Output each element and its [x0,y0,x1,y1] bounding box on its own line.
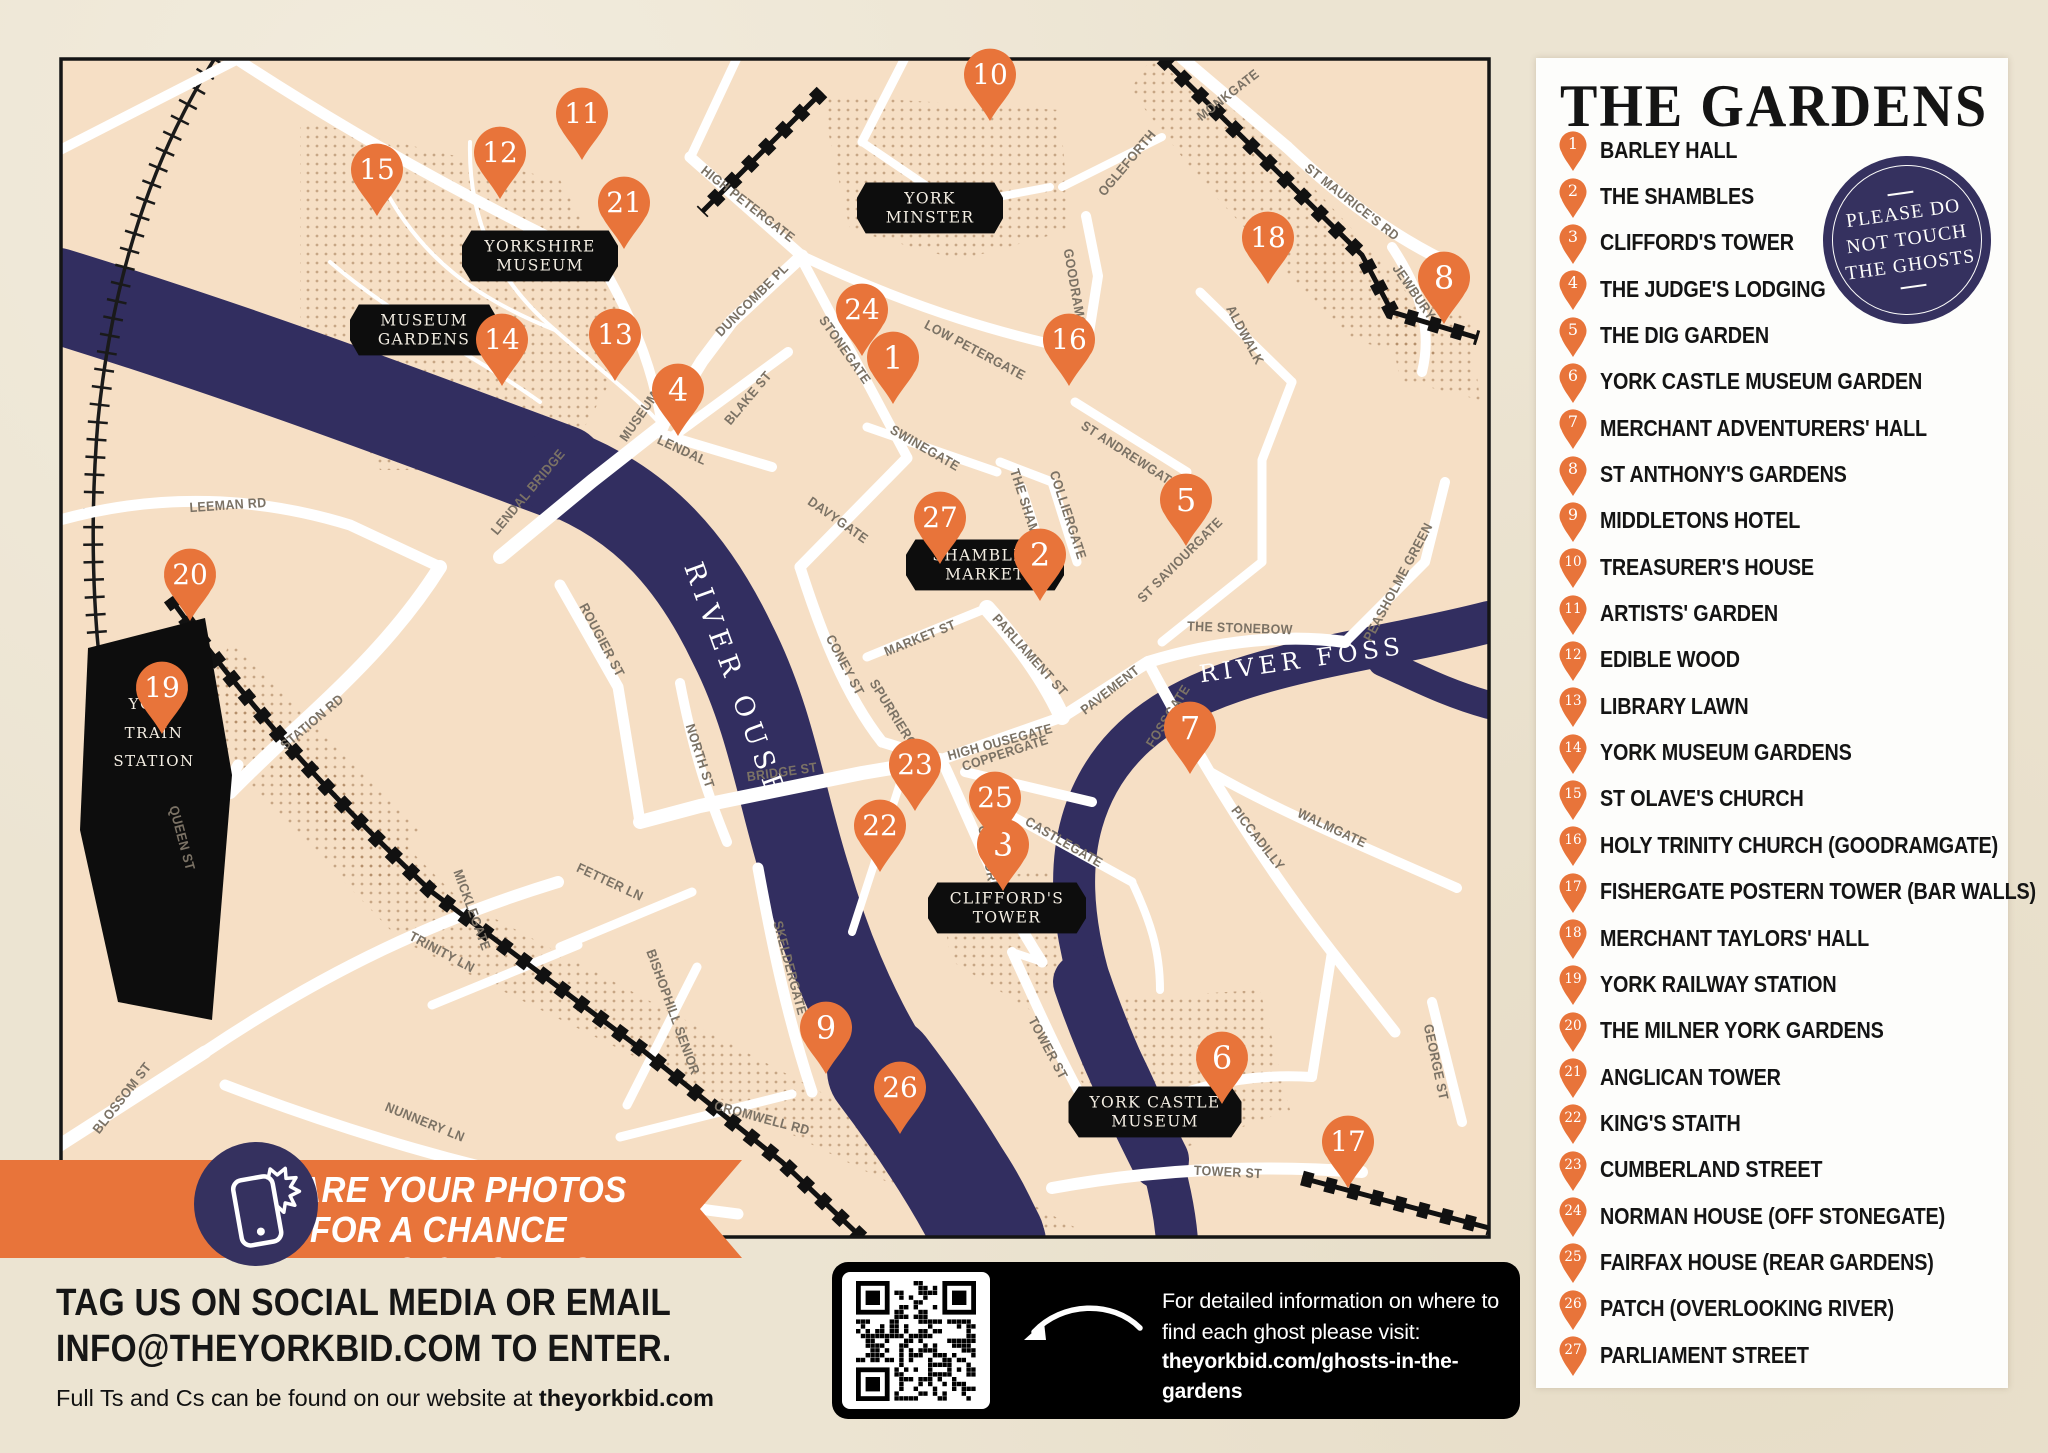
legend-item-label: THE SHAMBLES [1600,183,1754,210]
map-pin-14: 14 [476,314,528,386]
map-pin-icon: 3 [1558,221,1588,265]
legend-item-16: 16HOLY TRINITY CHURCH (GOODRAMGATE) [1536,822,2008,868]
svg-text:12: 12 [482,136,518,169]
svg-text:22: 22 [1564,1110,1581,1126]
map-pin-icon: 10 [1558,545,1588,589]
legend-item-label: EDIBLE WOOD [1600,646,1740,673]
legend-item-label: FAIRFAX HOUSE (REAR GARDENS) [1600,1249,1934,1276]
website-url: theyorkbid.com [539,1385,714,1411]
map-pin-2: 2 [1014,529,1066,601]
map-pin-icon: 16 [1558,823,1588,867]
legend-item-label: THE DIG GARDEN [1600,322,1769,349]
svg-text:5: 5 [1176,481,1196,519]
legend-item-9: 9MIDDLETONS HOTEL [1536,498,2008,544]
legend-item-label: HOLY TRINITY CHURCH (GOODRAMGATE) [1600,832,1998,859]
map-pin-icon: 9 [1558,499,1588,543]
map-pin-11: 11 [556,88,608,160]
svg-text:25: 25 [977,781,1013,814]
qr-url: theyorkbid.com/ghosts-in-the-gardens [1162,1347,1510,1407]
svg-text:8: 8 [1434,259,1454,297]
map-pin-icon: 17 [1558,870,1588,914]
map-pin-icon: 4 [1558,267,1588,311]
map-pin-12: 12 [474,127,526,199]
map-pin-15: 15 [351,144,403,216]
svg-text:18: 18 [1250,221,1286,254]
svg-text:26: 26 [1564,1296,1581,1312]
map-pin-icon: 13 [1558,684,1588,728]
map-pin-18: 18 [1242,212,1294,284]
curved-arrow-icon [1000,1292,1150,1362]
footer-text: TAG US ON SOCIAL MEDIA OR EMAIL INFO@THE… [56,1280,756,1412]
svg-text:2: 2 [1568,181,1578,200]
svg-text:3: 3 [1568,227,1578,246]
legend-item-10: 10TREASURER'S HOUSE [1536,544,2008,590]
svg-text:23: 23 [1564,1157,1581,1173]
legend-item-13: 13LIBRARY LAWN [1536,683,2008,729]
map-pin-icon: 14 [1558,731,1588,775]
map-pin-8: 8 [1418,252,1470,324]
map-pin-icon: 5 [1558,314,1588,358]
svg-text:16: 16 [1051,323,1087,356]
map-pin-7: 7 [1164,702,1216,774]
legend-item-8: 8ST ANTHONY'S GARDENS [1536,451,2008,497]
legend-item-label: MERCHANT ADVENTURERS' HALL [1600,415,1927,442]
svg-text:10: 10 [1564,554,1581,570]
legend-item-label: THE JUDGE'S LODGING [1600,276,1826,303]
legend-item-label: CLIFFORD'S TOWER [1600,229,1794,256]
legend-item-14: 14YORK MUSEUM GARDENS [1536,729,2008,775]
svg-text:22: 22 [862,809,898,842]
svg-text:14: 14 [1564,740,1581,756]
badge-dash-top [1887,191,1913,197]
legend-item-label: KING'S STAITH [1600,1110,1741,1137]
legend-item-24: 24NORMAN HOUSE (OFF STONEGATE) [1536,1193,2008,1239]
legend-item-label: PATCH (OVERLOOKING RIVER) [1600,1295,1894,1322]
map-pin-icon: 27 [1558,1333,1588,1377]
svg-text:13: 13 [1564,693,1581,709]
svg-text:27: 27 [1564,1342,1581,1358]
legend-item-7: 7MERCHANT ADVENTURERS' HALL [1536,405,2008,451]
legend-item-label: FISHERGATE POSTERN TOWER (BAR WALLS) [1600,878,2036,905]
qr-info-box: For detailed information on where to fin… [832,1262,1520,1419]
map-pin-icon: 1 [1558,128,1588,172]
svg-text:24: 24 [844,293,880,326]
svg-text:17: 17 [1564,879,1581,895]
legend-item-11: 11ARTISTS' GARDEN [1536,590,2008,636]
svg-text:13: 13 [597,318,633,351]
svg-text:9: 9 [816,1009,836,1047]
svg-text:10: 10 [972,58,1008,91]
map-pin-9: 9 [800,1002,852,1074]
svg-text:12: 12 [1564,647,1581,663]
svg-text:11: 11 [564,97,600,130]
qr-line-2: find each ghost please visit: [1162,1317,1510,1348]
svg-text:27: 27 [922,501,958,534]
legend-item-6: 6YORK CASTLE MUSEUM GARDEN [1536,359,2008,405]
qr-code-icon [856,1281,976,1401]
legend-item-25: 25FAIRFAX HOUSE (REAR GARDENS) [1536,1239,2008,1285]
photo-contest-banner: SHARE YOUR PHOTOS FOR A CHANCE TO WIN A … [0,1160,742,1258]
map-pin-6: 6 [1196,1032,1248,1104]
svg-text:1: 1 [883,339,903,377]
map-pin-icon: 22 [1558,1101,1588,1145]
selfie-phone-icon [194,1142,318,1266]
legend-sidebar: THE GARDENS PLEASE DO NOT TOUCH THE GHOS… [1536,58,2008,1388]
svg-text:1: 1 [1568,134,1578,153]
legend-item-15: 15ST OLAVE'S CHURCH [1536,776,2008,822]
svg-text:17: 17 [1330,1125,1366,1158]
map-pin-22: 22 [854,800,906,872]
legend-item-20: 20THE MILNER YORK GARDENS [1536,1008,2008,1054]
legend-item-17: 17FISHERGATE POSTERN TOWER (BAR WALLS) [1536,869,2008,915]
legend-item-label: MERCHANT TAYLORS' HALL [1600,925,1869,952]
svg-text:5: 5 [1568,320,1578,339]
map-pin-23: 23 [889,739,941,811]
map-pin-19: 19 [136,662,188,734]
svg-text:8: 8 [1568,459,1578,478]
map-pin-26: 26 [874,1062,926,1134]
svg-text:15: 15 [359,153,395,186]
map-pin-icon: 11 [1558,592,1588,636]
legend-item-23: 23CUMBERLAND STREET [1536,1147,2008,1193]
legend-item-label: YORK RAILWAY STATION [1600,971,1837,998]
map-pin-icon: 25 [1558,1240,1588,1284]
legend-item-label: YORK MUSEUM GARDENS [1600,739,1852,766]
map-pin-icon: 24 [1558,1194,1588,1238]
legend-item-label: NORMAN HOUSE (OFF STONEGATE) [1600,1203,1945,1230]
qr-line-1: For detailed information on where to [1162,1286,1510,1317]
map-pin-27: 27 [914,492,966,564]
svg-text:18: 18 [1564,925,1581,941]
map-pin-icon: 20 [1558,1009,1588,1053]
svg-text:4: 4 [668,371,688,409]
legend-item-27: 27PARLIAMENT STREET [1536,1332,2008,1378]
svg-text:15: 15 [1564,786,1581,802]
svg-text:2: 2 [1030,536,1050,574]
legend-item-19: 19YORK RAILWAY STATION [1536,961,2008,1007]
legend-item-label: ST OLAVE'S CHURCH [1600,785,1804,812]
svg-text:24: 24 [1564,1203,1581,1219]
legend-item-26: 26PATCH (OVERLOOKING RIVER) [1536,1286,2008,1332]
svg-text:26: 26 [882,1071,918,1104]
map-pin-icon: 6 [1558,360,1588,404]
legend-item-label: LIBRARY LAWN [1600,693,1748,720]
map-pin-icon: 21 [1558,1055,1588,1099]
legend-item-label: ST ANTHONY'S GARDENS [1600,461,1847,488]
terms-text: Full Ts and Cs can be found on our websi… [56,1385,756,1412]
svg-text:11: 11 [1564,601,1581,617]
svg-text:25: 25 [1564,1249,1581,1265]
svg-text:6: 6 [1212,1039,1232,1077]
svg-text:20: 20 [1564,1018,1581,1034]
legend-item-12: 12EDIBLE WOOD [1536,637,2008,683]
svg-text:9: 9 [1568,505,1578,524]
svg-text:14: 14 [484,323,520,356]
svg-text:4: 4 [1568,273,1578,292]
map-pin-icon: 8 [1558,453,1588,497]
svg-text:6: 6 [1568,366,1578,385]
map-pin-icon: 15 [1558,777,1588,821]
svg-text:7: 7 [1568,412,1578,431]
legend-item-label: CUMBERLAND STREET [1600,1156,1822,1183]
legend-item-label: THE MILNER YORK GARDENS [1600,1017,1884,1044]
footer-line-2: INFO@THEYORKBID.COM TO ENTER. [56,1326,672,1372]
svg-text:21: 21 [1564,1064,1581,1080]
svg-text:21: 21 [606,186,642,219]
legend-item-label: ARTISTS' GARDEN [1600,600,1778,627]
map-pin-17: 17 [1322,1116,1374,1188]
map-pin-icon: 26 [1558,1287,1588,1331]
svg-text:16: 16 [1564,832,1581,848]
svg-text:23: 23 [897,748,933,781]
map-pin-icon: 18 [1558,916,1588,960]
qr-code-panel [842,1272,990,1409]
svg-text:7: 7 [1180,709,1200,747]
svg-text:19: 19 [1564,971,1581,987]
map-pin-10: 10 [964,49,1016,121]
legend-item-5: 5THE DIG GARDEN [1536,312,2008,358]
map-pin-4: 4 [652,364,704,436]
legend-item-label: YORK CASTLE MUSEUM GARDEN [1600,368,1922,395]
qr-instructions: For detailed information on where to fin… [1162,1286,1510,1407]
map-pin-icon: 12 [1558,638,1588,682]
map-pin-icon: 7 [1558,406,1588,450]
photo-circle [194,1142,318,1266]
map-pin-icon: 19 [1558,962,1588,1006]
legend-item-21: 21ANGLICAN TOWER [1536,1054,2008,1100]
legend-item-label: PARLIAMENT STREET [1600,1342,1809,1369]
map-pin-13: 13 [589,309,641,381]
map-pin-16: 16 [1043,314,1095,386]
legend-item-label: BARLEY HALL [1600,137,1737,164]
map-pin-21: 21 [598,177,650,249]
badge-dash-bottom [1900,283,1926,289]
map-pin-icon: 2 [1558,175,1588,219]
svg-text:19: 19 [144,671,180,704]
legend-item-22: 22KING'S STAITH [1536,1100,2008,1146]
map-pin-1: 1 [867,332,919,404]
legend-item-18: 18MERCHANT TAYLORS' HALL [1536,915,2008,961]
legend-item-label: MIDDLETONS HOTEL [1600,507,1800,534]
map-pin-5: 5 [1160,474,1212,546]
map-pin-20: 20 [164,549,216,621]
svg-text:20: 20 [172,558,208,591]
legend-item-label: TREASURER'S HOUSE [1600,554,1814,581]
map-pin-icon: 23 [1558,1148,1588,1192]
legend-item-label: ANGLICAN TOWER [1600,1064,1781,1091]
footer-line-1: TAG US ON SOCIAL MEDIA OR EMAIL [56,1280,672,1326]
